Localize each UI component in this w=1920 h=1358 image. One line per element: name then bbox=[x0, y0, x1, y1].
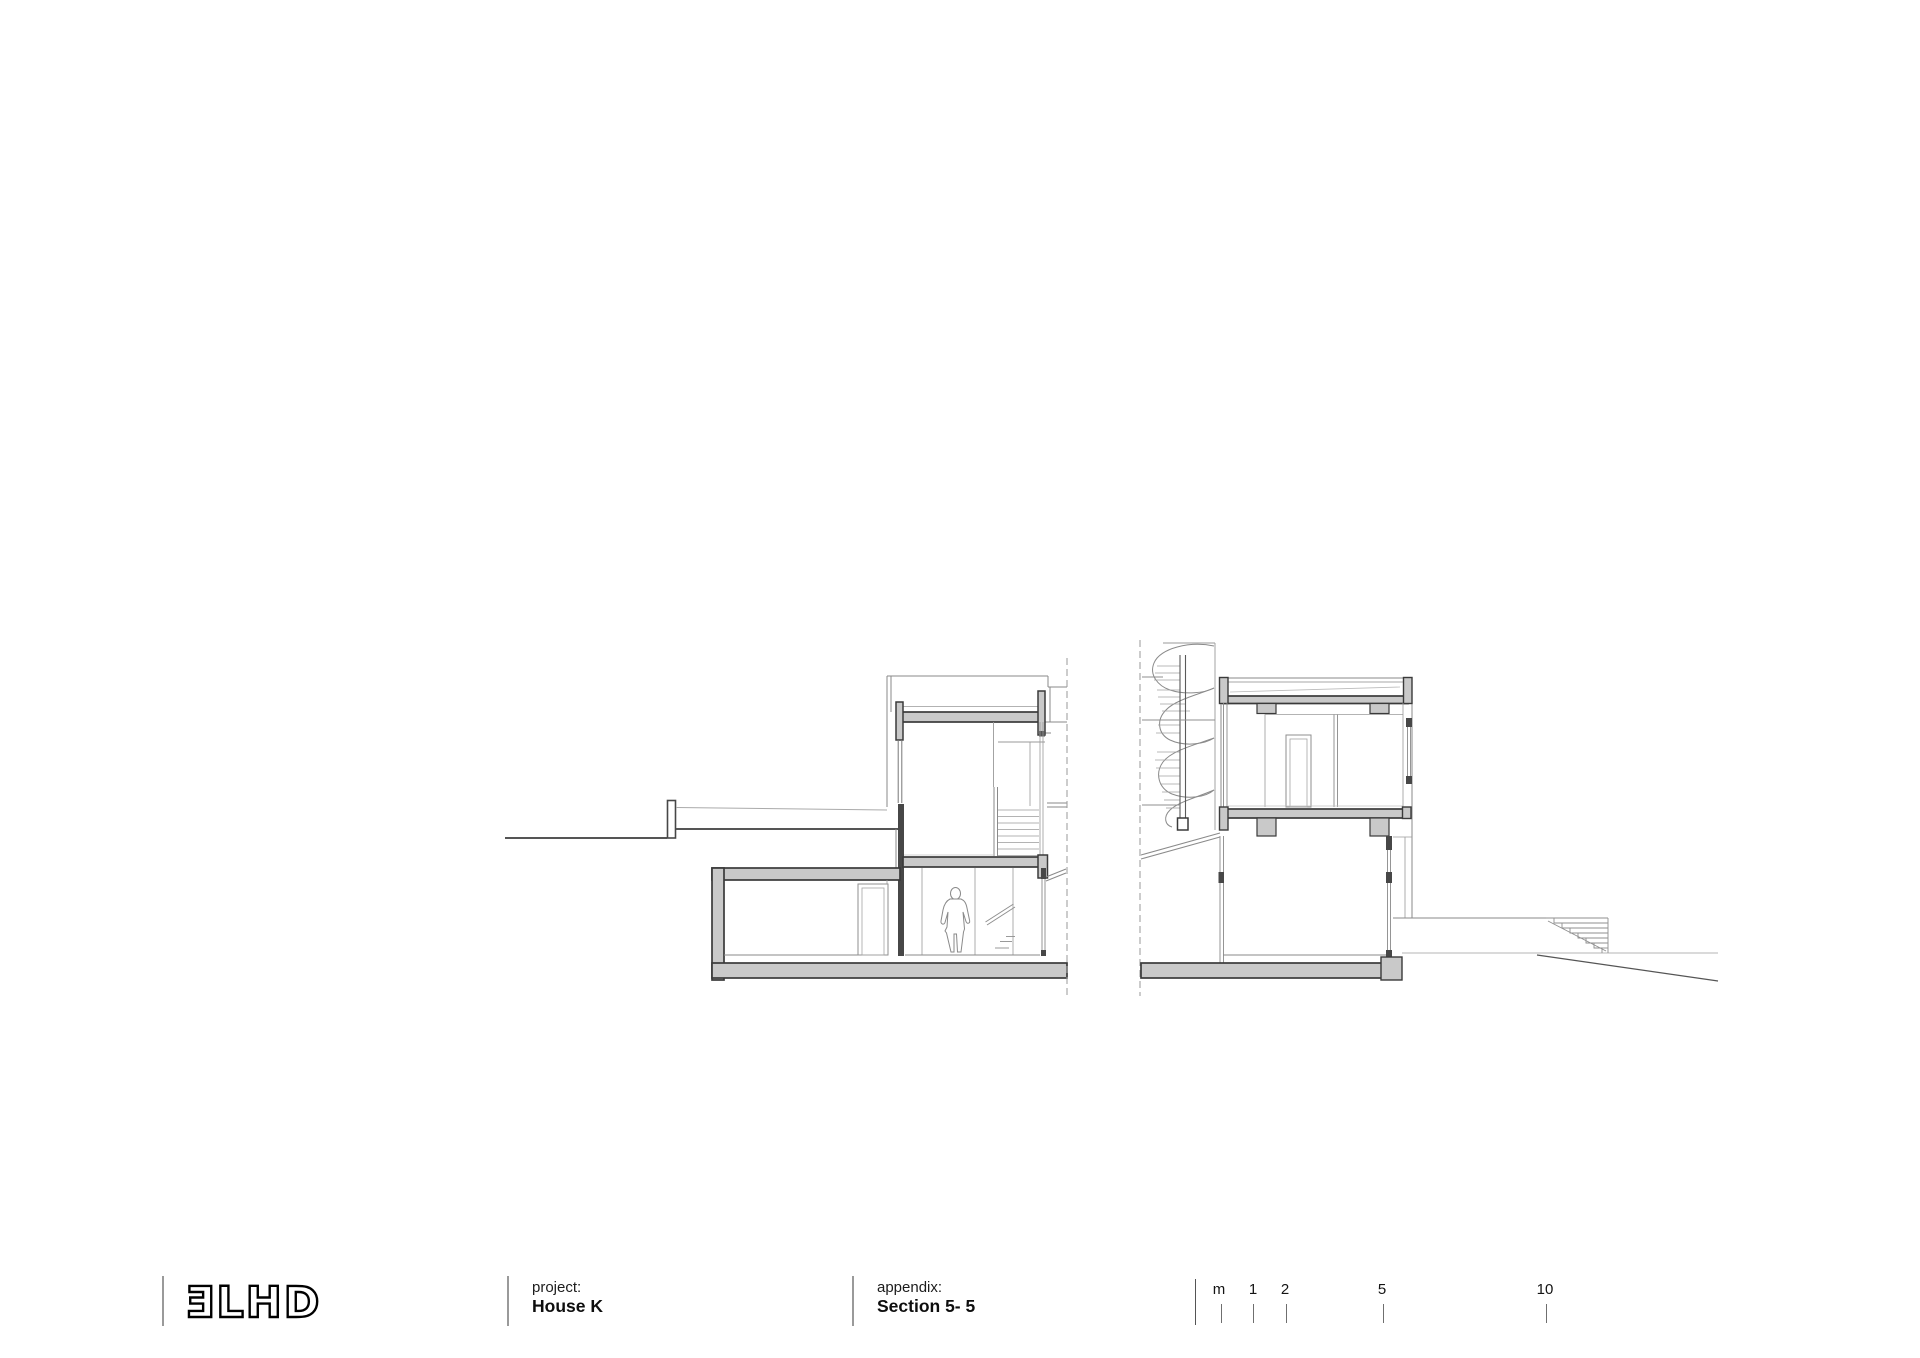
right-base-slab bbox=[1141, 963, 1396, 978]
footer-divider bbox=[507, 1276, 509, 1326]
left-building-upper-floor bbox=[994, 722, 1046, 856]
left-building-lower-floor bbox=[905, 868, 1046, 956]
left-building-roof-slab bbox=[896, 691, 1045, 740]
scale-mark-label: 10 bbox=[1537, 1281, 1554, 1298]
scale-mark-label: 5 bbox=[1378, 1281, 1386, 1298]
lower-stair-fragment bbox=[986, 904, 1016, 948]
exterior-stairs bbox=[1546, 918, 1608, 953]
project-name: House K bbox=[532, 1297, 603, 1316]
basement-door bbox=[858, 884, 888, 955]
lower-floor-east-wall bbox=[1041, 868, 1046, 956]
stair-guardrail bbox=[994, 787, 998, 856]
scale-tick bbox=[1383, 1304, 1384, 1323]
scale-mark-label: 1 bbox=[1249, 1281, 1257, 1298]
drawing-sheet: ƎLHD project: House K appendix: Section … bbox=[0, 0, 1920, 1358]
upper-stair-treads bbox=[998, 810, 1039, 856]
left-building-west-wall bbox=[898, 740, 904, 956]
spiral-treads bbox=[1154, 666, 1190, 808]
scale-tick bbox=[1286, 1304, 1287, 1323]
project-label: project: bbox=[532, 1279, 581, 1296]
left-terrain-walkway bbox=[505, 801, 904, 839]
right-building-lower-floor bbox=[1141, 833, 1412, 963]
section-break-lines bbox=[1067, 640, 1140, 996]
scale-mark-label: m bbox=[1213, 1281, 1226, 1298]
person-figure bbox=[941, 888, 970, 953]
upper-floor-partition bbox=[1334, 715, 1338, 808]
ground-slope-line bbox=[1537, 955, 1718, 981]
ramp-lines bbox=[1141, 833, 1220, 859]
roof-column-head bbox=[1257, 704, 1276, 714]
footer-divider bbox=[852, 1276, 854, 1326]
scale-mark-label: 2 bbox=[1281, 1281, 1289, 1298]
logo-3lhd: ƎLHD bbox=[183, 1280, 368, 1328]
appendix-name: Section 5- 5 bbox=[877, 1297, 975, 1316]
scale-tick bbox=[1221, 1304, 1222, 1323]
appendix-label: appendix: bbox=[877, 1279, 942, 1296]
spiral-pole-footing bbox=[1178, 818, 1189, 830]
mid-column-head bbox=[1370, 818, 1389, 836]
mid-column-head bbox=[1257, 818, 1276, 836]
spiral-staircase bbox=[1142, 643, 1215, 830]
scale-tick bbox=[1546, 1304, 1547, 1323]
scale-bar-separator bbox=[1195, 1279, 1196, 1325]
section-drawing bbox=[0, 0, 1920, 1358]
logo-text: ƎLHD bbox=[185, 1280, 321, 1328]
slab-edge-upstand bbox=[1381, 957, 1402, 980]
scale-tick bbox=[1253, 1304, 1254, 1323]
footer-divider bbox=[162, 1276, 164, 1326]
right-building-roof-slab bbox=[1220, 678, 1413, 714]
right-building-mid-slab bbox=[1220, 807, 1412, 836]
upper-floor-east-window bbox=[1403, 703, 1412, 807]
right-terrain bbox=[1393, 918, 1718, 981]
left-building-east-stubs bbox=[1046, 803, 1067, 881]
right-building-upper-floor bbox=[1224, 703, 1413, 807]
west-wall-window bbox=[898, 740, 902, 803]
roof-column-head bbox=[1370, 704, 1389, 714]
left-base-slab bbox=[712, 963, 1067, 978]
spiral-helix bbox=[1153, 644, 1214, 827]
walkway-parapet-post bbox=[668, 801, 676, 839]
